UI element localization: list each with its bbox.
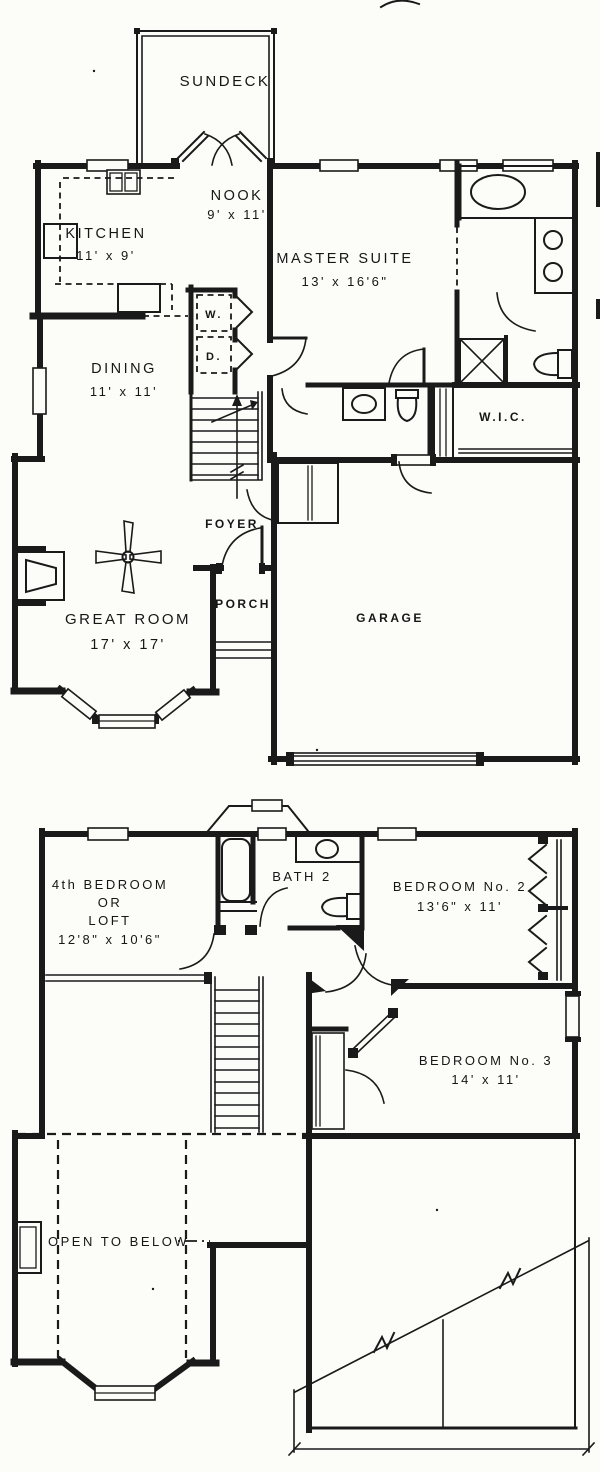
roof-area: [289, 1140, 594, 1455]
bed4-door-arc: [180, 934, 214, 969]
bed3-entry-door: [348, 1008, 398, 1058]
scan-speck: [436, 1209, 438, 1211]
bath-door-arc: [497, 293, 535, 331]
wic-label: W.I.C.: [479, 410, 527, 424]
bath2-door-arc: [260, 888, 287, 926]
dryer-label: D.: [206, 351, 222, 363]
bath-bay: [208, 800, 308, 831]
front-door-arc: [222, 528, 260, 566]
master-suite-wall: [270, 163, 306, 460]
toilet-icon: [534, 350, 572, 378]
bed2-dims: 13'6" x 11': [417, 899, 503, 914]
powder-door-arc: [282, 389, 307, 414]
great-room-dims: 17' x 17': [90, 637, 166, 653]
scan-artifact: [381, 1, 419, 7]
laundry-closet: [188, 287, 252, 392]
bath-2: [214, 834, 364, 951]
vanity-sink-icon: [544, 263, 562, 281]
sundeck-label: SUNDECK: [180, 73, 271, 90]
range-icon: [118, 284, 160, 312]
garage-entry-door: [391, 454, 436, 493]
chimney-chase: [15, 1222, 41, 1273]
bathtub-icon: [222, 839, 250, 901]
bed4-dims: 12'8" x 10'6": [58, 932, 162, 947]
fireplace-icon: [14, 546, 64, 606]
hall-closet: [433, 387, 453, 458]
bed4-label-3: LOFT: [88, 913, 131, 928]
dining-label: DINING: [91, 361, 157, 377]
nook-label: NOOK: [211, 188, 264, 204]
scan-speck: [93, 70, 95, 72]
dining-dims: 11' x 11': [90, 384, 158, 399]
sink-icon: [316, 840, 338, 858]
vanity-sink-icon: [544, 231, 562, 249]
first-floor: SUNDECK NOOK 9' x 11' KITCHEN 11' x 9' M…: [14, 1, 600, 766]
master-suite-label: MASTER SUITE: [276, 251, 413, 267]
kitchen-label: KITCHEN: [65, 226, 146, 242]
kitchen: [44, 170, 188, 316]
toilet-icon: [396, 390, 418, 421]
bath2-label: BATH 2: [272, 869, 332, 884]
master-bath: [455, 163, 577, 385]
nook-dims: 9' x 11': [207, 207, 266, 222]
garage-label: GARAGE: [356, 611, 424, 625]
great-room-label: GREAT ROOM: [65, 611, 191, 628]
bed3-closet: [312, 1033, 384, 1129]
staircase-1f: [191, 392, 262, 498]
bed2-closets: [529, 836, 566, 980]
porch-steps: [216, 642, 271, 658]
coat-closet: [247, 463, 338, 523]
bed3-dims: 14' x 11': [451, 1072, 520, 1087]
master-suite-dims: 13' x 16'6": [302, 274, 389, 289]
french-doors: [171, 132, 275, 168]
sundeck: [134, 28, 277, 163]
scan-speck: [316, 749, 318, 751]
hall-walls-2f: [306, 946, 575, 1430]
sink-icon: [343, 388, 385, 420]
floor-plan-page: SUNDECK NOOK 9' x 11' KITCHEN 11' x 9' M…: [0, 0, 600, 1472]
washer-label: W.: [205, 309, 223, 321]
open-below-label: OPEN TO BELOW: [48, 1234, 189, 1249]
ceiling-fan-icon: [96, 521, 161, 593]
wic-door-arc: [389, 349, 424, 383]
bed3-label: BEDROOM No. 3: [419, 1053, 553, 1068]
kitchen-dims: 11' x 9': [76, 248, 135, 263]
scan-speck: [152, 1288, 154, 1290]
loft-railing: [46, 972, 212, 984]
bed2-label: BEDROOM No. 2: [393, 879, 527, 894]
master-door-arc: [272, 338, 306, 376]
shower-icon: [460, 339, 504, 383]
floor-plan-drawing: SUNDECK NOOK 9' x 11' KITCHEN 11' x 9' M…: [0, 0, 600, 1472]
porch-label: PORCH: [215, 597, 271, 611]
foyer-label: FOYER: [205, 517, 259, 531]
dimension-lines: [289, 1238, 594, 1455]
scan-edge-mark: [596, 152, 600, 207]
bathtub-icon: [460, 166, 573, 218]
windows-2f: [88, 828, 581, 1400]
bed4-label-2: OR: [98, 895, 123, 910]
hall-door-arcs: [326, 946, 398, 992]
roof-ridge-line: [295, 1241, 588, 1392]
scan-edge-mark: [596, 299, 600, 319]
toilet-icon: [322, 894, 361, 919]
staircase-2f: [211, 977, 263, 1132]
bed4-label-1: 4th BEDROOM: [52, 877, 168, 892]
powder-room: [282, 385, 455, 460]
garage-door: [286, 752, 484, 766]
